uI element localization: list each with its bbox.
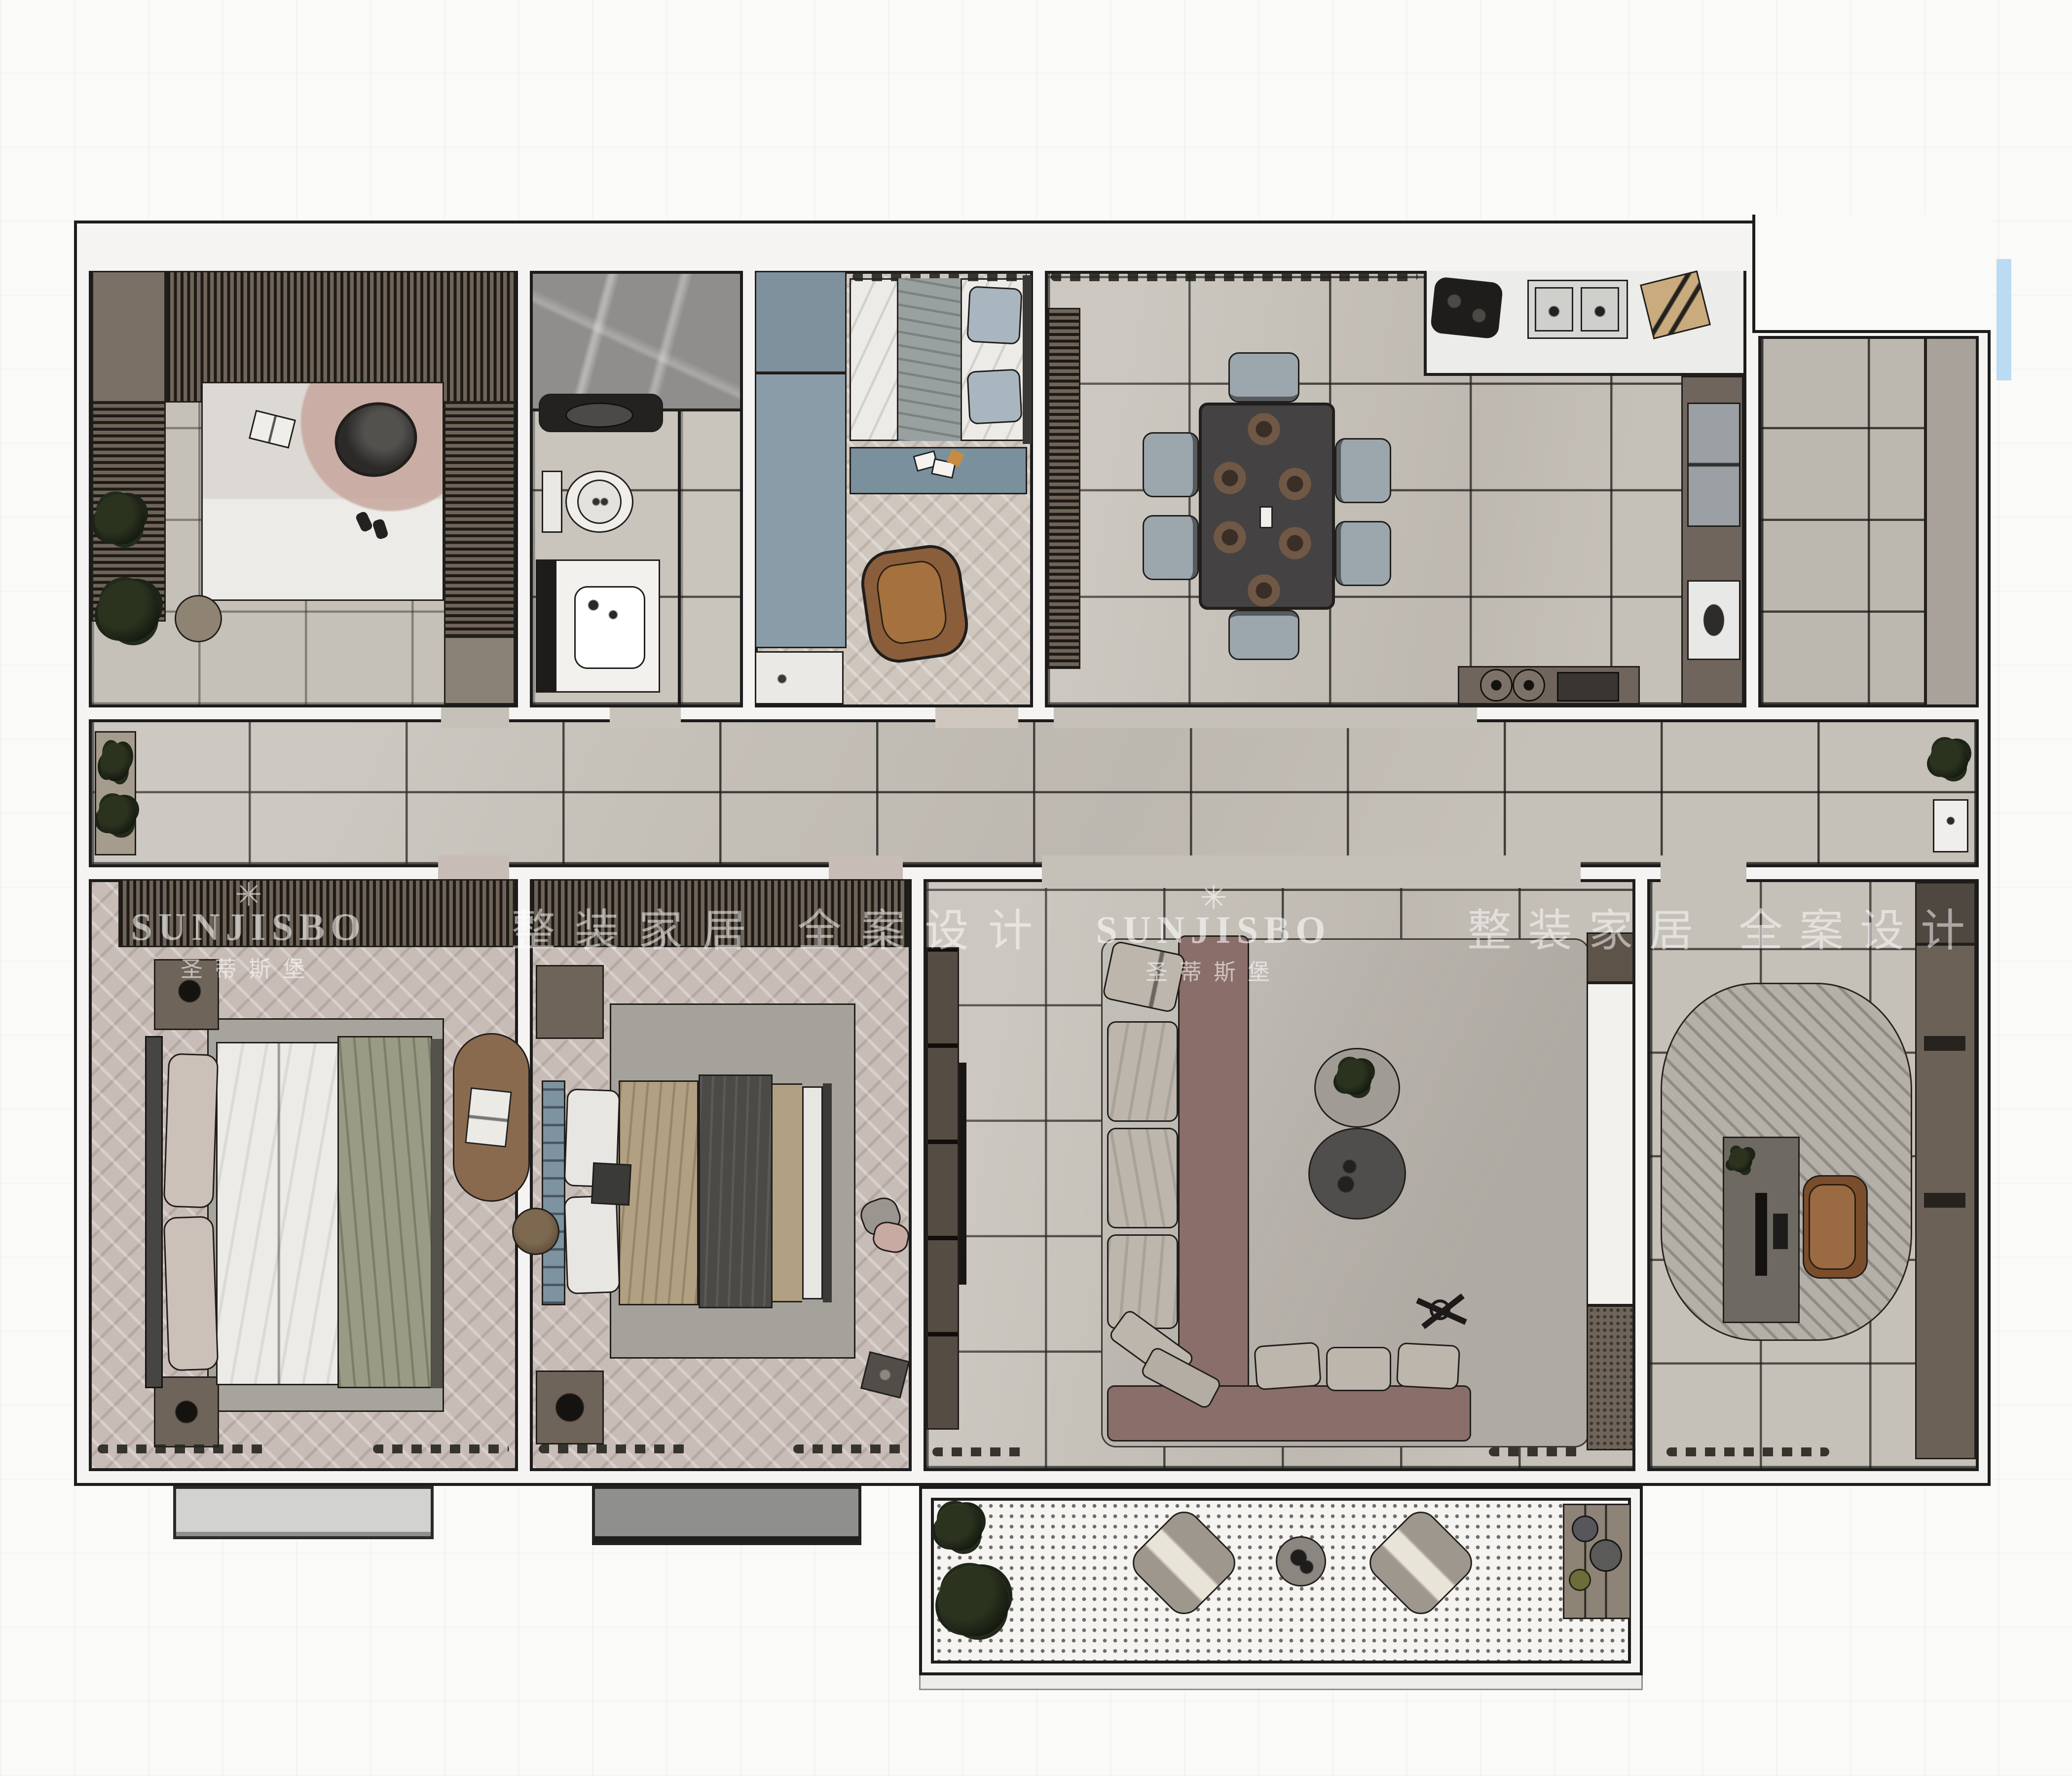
potted-plant xyxy=(1569,1569,1591,1591)
refrigerator xyxy=(1687,403,1740,527)
curtain xyxy=(793,1444,906,1453)
sofa-cushion xyxy=(1326,1347,1391,1391)
keyboard xyxy=(1773,1214,1788,1249)
pillow xyxy=(564,1195,621,1295)
plate xyxy=(1214,521,1246,554)
coffee-table-dark xyxy=(1308,1128,1406,1220)
toilet-seat xyxy=(577,480,622,524)
plate xyxy=(1214,462,1246,494)
curtain xyxy=(1489,1447,1581,1456)
balcony-side-tiles xyxy=(1924,339,1976,704)
bed-blanket-dark xyxy=(699,1074,773,1308)
plant xyxy=(98,796,136,835)
kitchen-sink-2 xyxy=(1687,580,1740,660)
desk-plant xyxy=(1729,1148,1752,1172)
tv xyxy=(959,1063,966,1285)
plate xyxy=(1279,527,1311,559)
door-opening xyxy=(441,707,509,728)
curtain xyxy=(1666,1447,1829,1456)
sofa-base xyxy=(1178,935,1249,1391)
sideboard xyxy=(1048,308,1080,669)
dresser xyxy=(755,651,844,704)
headboard xyxy=(542,1080,565,1305)
bookshelf-slot xyxy=(1924,1036,1965,1051)
footboard xyxy=(823,1083,832,1302)
door-opening xyxy=(935,707,1018,728)
plant xyxy=(98,580,160,642)
sofa-cushion xyxy=(1254,1342,1322,1391)
footboard xyxy=(431,1039,443,1388)
plant xyxy=(1336,1060,1372,1095)
dining-chair xyxy=(1335,438,1391,503)
wok-burner xyxy=(1513,669,1545,702)
wardrobe-right xyxy=(444,403,515,636)
sofa-cushion xyxy=(1396,1342,1461,1390)
curtain xyxy=(98,1444,269,1453)
tv-cabinet xyxy=(926,947,959,1430)
wok-burner xyxy=(1480,669,1513,702)
washer-door xyxy=(574,586,645,669)
plate xyxy=(1248,574,1280,607)
bed-blanket-tan xyxy=(619,1080,699,1305)
wardrobe-blue xyxy=(755,373,847,648)
bed-blanket xyxy=(897,278,962,441)
sink-bowl xyxy=(1581,287,1619,332)
wardrobe xyxy=(118,879,515,947)
plant xyxy=(95,494,145,545)
sofa-cushion xyxy=(1107,1128,1178,1228)
napkin xyxy=(1259,506,1273,528)
bed-blanket-tan xyxy=(773,1083,802,1302)
floor-chair-seat xyxy=(874,558,949,647)
door-opening xyxy=(1661,855,1746,888)
sofa-cushion xyxy=(1107,1021,1178,1122)
curtain xyxy=(1051,272,1418,281)
magazines xyxy=(465,1087,512,1147)
cabinet-corner xyxy=(92,271,166,403)
sink-bowl xyxy=(1535,287,1573,332)
plant xyxy=(938,1566,1009,1637)
nightstand xyxy=(154,1376,219,1447)
room-hallway xyxy=(89,719,1979,867)
balcony-sill xyxy=(919,1675,1643,1690)
nightstand xyxy=(536,965,604,1039)
floor-plant-sketch xyxy=(1430,1299,1450,1320)
blue-stripe-artifact xyxy=(1997,259,2011,380)
sofa-cushion xyxy=(1107,1234,1178,1329)
pillow xyxy=(163,1216,219,1371)
dining-chair xyxy=(1143,432,1199,497)
dining-chair xyxy=(1228,352,1299,403)
bookshelf-top xyxy=(1915,882,1976,944)
sofa-base xyxy=(1107,1385,1471,1442)
potted-plant xyxy=(1572,1516,1598,1542)
stove-dark xyxy=(1557,672,1619,702)
computer-monitor xyxy=(1755,1193,1767,1276)
room-south-balcony xyxy=(931,1498,1631,1664)
pillow xyxy=(966,369,1023,425)
door-opening xyxy=(1042,855,1581,888)
floor-plan-canvas: ✳ SUNJISBO 圣蒂斯堡 整装家居 全案设计 ✳ SUNJISBO 圣蒂斯… xyxy=(0,0,2072,1776)
bed-blanket xyxy=(337,1036,432,1388)
plant xyxy=(1930,740,1968,778)
hall-cabinet xyxy=(1933,799,1968,852)
door-opening xyxy=(610,707,681,728)
round-pouf xyxy=(175,595,222,642)
bed-mattress-end xyxy=(802,1086,823,1299)
bed-tray xyxy=(591,1162,631,1206)
nightstand xyxy=(154,959,219,1030)
sliding-door-panel xyxy=(1587,983,1634,1305)
side-table xyxy=(1276,1536,1326,1587)
door-opening xyxy=(1054,707,1477,728)
curtain xyxy=(539,1444,693,1453)
office-chair-seat xyxy=(1809,1184,1856,1270)
washer-side-panel xyxy=(536,559,556,693)
bay-window xyxy=(592,1486,861,1545)
cabinet-right-low xyxy=(444,636,515,704)
toilet-tank xyxy=(542,471,562,533)
bookshelf-slot xyxy=(1924,1193,1965,1208)
plant xyxy=(101,743,130,781)
shower-area xyxy=(533,274,740,411)
potted-plant xyxy=(1590,1539,1622,1572)
shower-screen xyxy=(678,411,681,704)
curtain xyxy=(932,1447,1027,1456)
dining-chair xyxy=(1143,515,1199,580)
round-pouf xyxy=(512,1208,559,1255)
pillow xyxy=(966,286,1023,344)
plate xyxy=(1279,468,1311,500)
wardrobe xyxy=(530,879,909,947)
partition-cabinet xyxy=(1587,932,1634,983)
headboard xyxy=(1023,275,1032,444)
plate xyxy=(1248,413,1280,445)
cooktop xyxy=(1430,276,1503,339)
top-right-corner-cutout xyxy=(1752,215,1991,333)
bay-window xyxy=(173,1486,434,1539)
partition-cabinet xyxy=(1587,1305,1634,1450)
nightstand xyxy=(536,1370,604,1444)
curtain xyxy=(373,1444,509,1453)
plant xyxy=(935,1504,983,1551)
sink-basin xyxy=(565,403,633,428)
bed-sheet xyxy=(216,1042,340,1385)
wardrobe-blue-top xyxy=(755,271,847,373)
dining-chair xyxy=(1335,521,1391,586)
dining-chair xyxy=(1228,610,1299,660)
headboard xyxy=(145,1036,163,1388)
pillow xyxy=(163,1053,219,1208)
